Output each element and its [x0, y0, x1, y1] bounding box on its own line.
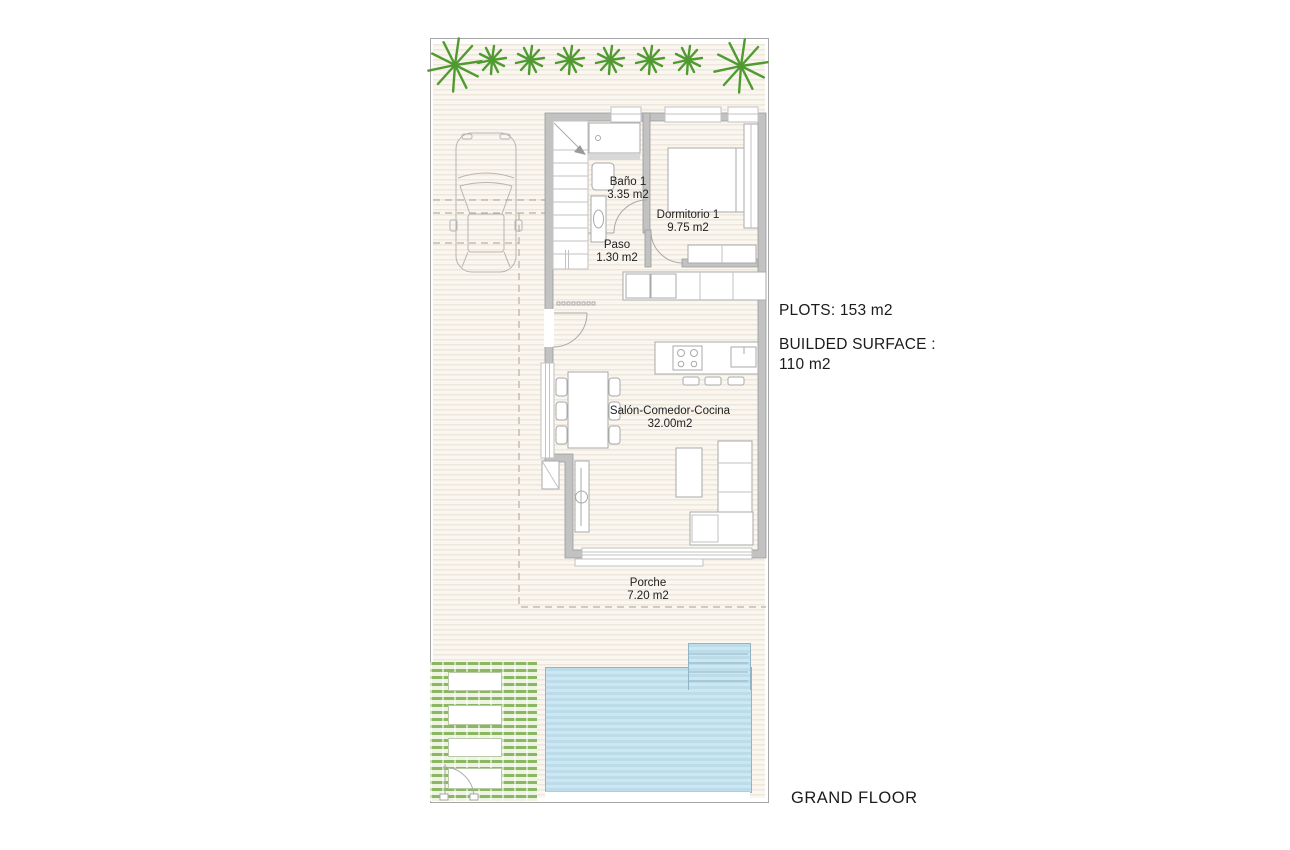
palm-tree-icon: [556, 46, 584, 74]
room-label-dormitorio: Dormitorio 1 9.75 m2: [640, 209, 736, 235]
sliding-door: [575, 548, 752, 566]
stool: [728, 377, 744, 385]
palm-tree-icon: [596, 46, 624, 74]
coat-hooks: [557, 302, 595, 305]
pool-step-lines: [688, 654, 748, 681]
stool: [705, 377, 721, 385]
entrance-door: [544, 309, 587, 347]
bedroom-door-swing: [651, 231, 683, 263]
coffee-table: [676, 448, 702, 497]
kitchen: [623, 272, 766, 385]
palm-tree-row: [428, 38, 767, 92]
chair: [609, 378, 620, 396]
chair: [556, 378, 567, 396]
chair: [556, 426, 567, 444]
palm-tree-icon: [714, 39, 767, 92]
staircase: [553, 121, 588, 269]
builded-surface-label: BUILDED SURFACE :: [779, 335, 936, 355]
plan-title: GRAND FLOOR: [791, 789, 918, 808]
kitchen-counter: [623, 272, 766, 300]
palm-tree-icon: [636, 46, 664, 74]
sofa-chaise: [690, 512, 753, 545]
stool: [683, 377, 699, 385]
room-label-porche: Porche 7.20 m2: [598, 577, 698, 603]
living-zone: [542, 441, 753, 545]
palm-tree-icon: [674, 46, 702, 74]
plots-annotation: PLOTS: 153 m2: [779, 301, 893, 321]
car-icon: [450, 133, 522, 272]
room-label-paso: Paso 1.30 m2: [587, 239, 647, 265]
bedroom-furniture: [668, 124, 758, 263]
palm-tree-icon: [428, 38, 481, 91]
floor-plan-canvas: Baño 1 3.35 m2 Dormitorio 1 9.75 m2 Paso…: [0, 0, 1290, 850]
builded-surface-value: 110 m2: [779, 355, 831, 375]
shelf: [589, 154, 640, 160]
palm-tree-icon: [516, 46, 544, 74]
room-label-salon: Salón-Comedor-Cocina 32.00m2: [595, 405, 745, 431]
shower: [589, 123, 640, 153]
palm-tree-icon: [478, 46, 506, 74]
tv-unit: [575, 461, 589, 532]
room-label-bano: Baño 1 3.35 m2: [598, 176, 658, 202]
garden-gate-icon: [440, 764, 478, 800]
chair: [556, 402, 567, 420]
